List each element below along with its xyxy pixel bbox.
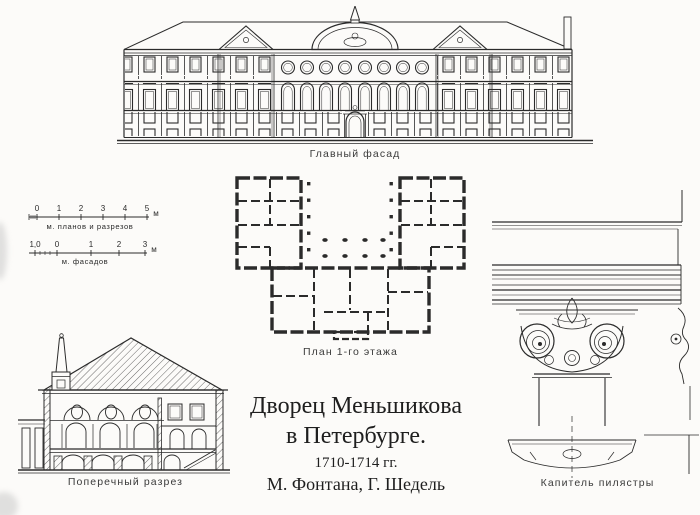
scale-bar-plans: 0 1 2 3 4 5 м м. планов и разрезов (27, 202, 162, 234)
capital-side-profile (644, 308, 699, 474)
capital-drawing (492, 188, 700, 480)
title-years: 1710-1714 гг. (200, 453, 512, 473)
scale-number: 3 (143, 240, 148, 249)
scale-unit: м (151, 245, 157, 254)
facade-groundline (117, 141, 593, 144)
title-line-1: Дворец Меньшикова (200, 391, 512, 421)
section-groundline (18, 470, 230, 473)
scale-number: 4 (123, 204, 128, 213)
scale-label: м. планов и разрезов (47, 222, 134, 231)
scale-number: 2 (117, 240, 122, 249)
scale-number: 2 (79, 204, 84, 213)
capital-entablature (492, 190, 682, 304)
title-architects: М. Фонтана, Г. Шедель (200, 473, 512, 496)
scale-number: 0 (55, 240, 60, 249)
section-annex (18, 420, 45, 468)
scale-number: 3 (101, 204, 106, 213)
scale-number: 1 (57, 204, 62, 213)
capital-label: Капитель пилястры (495, 477, 700, 489)
plan-colonnade (307, 182, 393, 258)
section-upper-hall (50, 405, 216, 453)
facade-drawing (115, 6, 595, 148)
scanned-architecture-plate: Главный фасад 0 1 2 3 4 5 м м. планов и … (0, 0, 700, 515)
plan-drawing (228, 172, 473, 344)
capital-ornament (516, 298, 638, 378)
scan-artifact (0, 492, 18, 515)
title-line-2: в Петербурге. (200, 421, 512, 451)
plan-label: План 1-го этажа (228, 346, 473, 358)
section-basement (54, 450, 216, 470)
scale-bar-facades: 1,0 0 1 2 3 м м. фасадов (27, 238, 162, 268)
scale-number: 1,0 (29, 240, 41, 249)
scale-number: 1 (89, 240, 94, 249)
scan-artifact (0, 222, 7, 280)
scale-number: 5 (145, 204, 150, 213)
facade-label: Главный фасад (115, 148, 595, 160)
capital-plan-view (508, 416, 636, 478)
scale-number: 0 (35, 204, 40, 213)
scale-label: м. фасадов (62, 257, 109, 266)
facade-pediments (219, 6, 487, 50)
scale-unit: м (153, 209, 159, 218)
plate-title: Дворец Меньшикова в Петербурге. 1710-171… (200, 391, 512, 496)
section-tower (52, 334, 70, 390)
